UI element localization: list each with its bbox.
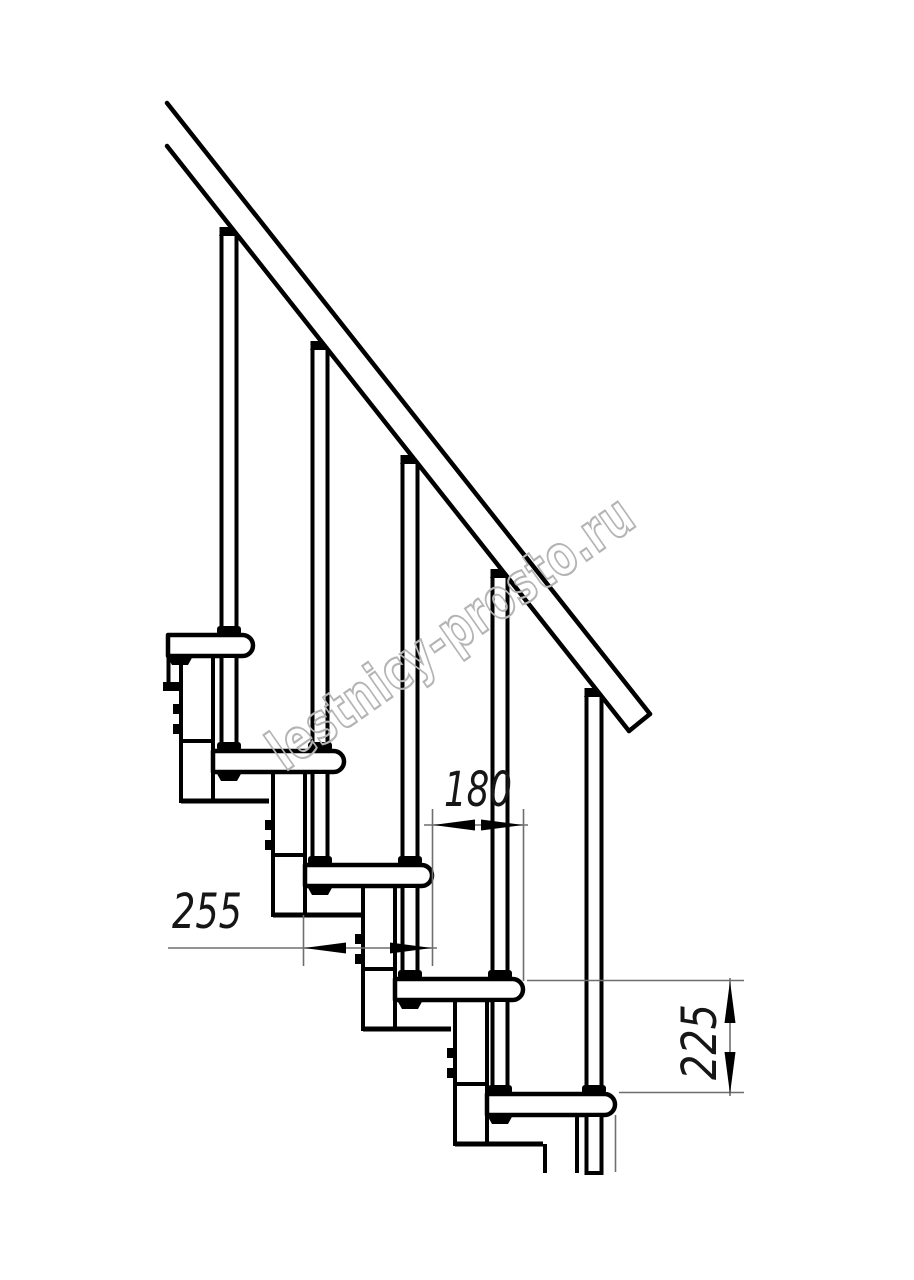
baluster-5 [587,690,602,1094]
bolt [447,1068,457,1078]
bolt [173,704,183,714]
collar [398,970,422,979]
collar [217,626,241,635]
dimension-225-label: 225 [672,1004,728,1080]
collar [488,1085,512,1094]
baluster-3-lower [403,886,418,979]
bolt [265,820,275,830]
tread-3 [305,865,432,886]
bolt [355,954,365,964]
collar [398,856,422,865]
tread-1 [168,635,253,656]
tread-5 [487,1094,615,1115]
drawing-canvas: 255 180 225 lestnicy-prosto.ru [0,0,914,1280]
dimension-255-label: 255 [172,884,242,940]
bolt [355,934,365,944]
collar [488,970,512,979]
collar [217,742,241,751]
bolt [447,1048,457,1058]
wall-bracket [163,682,181,691]
baluster-2-lower [313,772,328,865]
tread-4 [395,979,523,1000]
stair-drawing-svg: 255 180 225 lestnicy-prosto.ru [0,0,914,1280]
baluster-5-lower [587,1115,602,1173]
dimension-180-label: 180 [444,762,512,818]
collar [308,856,332,865]
baluster-1 [222,229,237,635]
bolt [173,724,183,734]
bolt [265,840,275,850]
baluster-4-lower [493,1000,508,1094]
collar [582,1085,606,1094]
baluster-1-lower [222,656,237,751]
